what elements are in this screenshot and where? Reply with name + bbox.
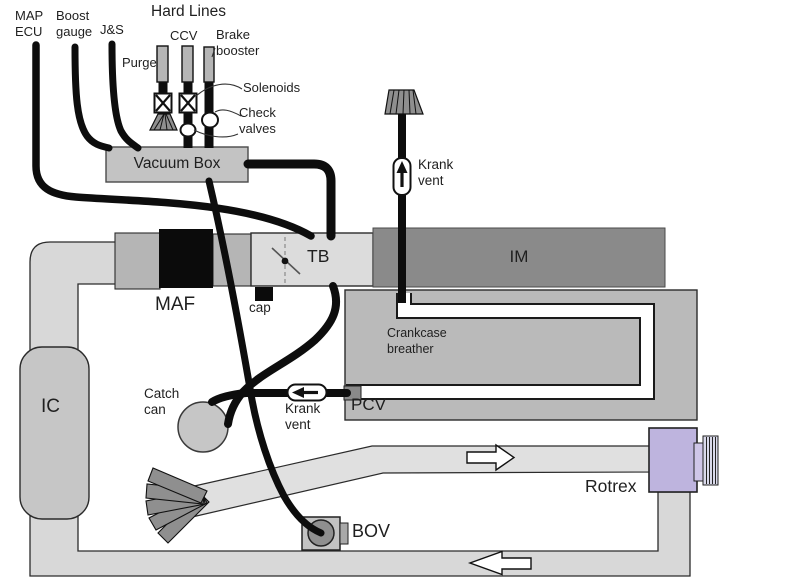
ccv-solenoid-icon [180,94,197,113]
label-rotrex: Rotrex [585,476,637,497]
intercooler-shape [20,347,89,519]
boost-gauge-hose [75,47,109,148]
label-bov: BOV [352,521,390,543]
label-purge: Purge [122,55,157,71]
ccv-stub [182,46,193,82]
label-solenoids: Solenoids [243,80,300,96]
purge-solenoid-icon [155,94,172,113]
throttle-pivot-dot [282,258,289,265]
supercharger-inlet-pipe [181,446,650,517]
label-krank-vent-mid: Krank vent [285,401,320,433]
label-check-valves: Check valves [239,105,276,136]
krank-vent-filter-icon [385,90,423,114]
maf-sensor-shape [159,229,213,288]
brake-check-valve-icon [202,113,218,128]
ccv-check-valve-icon [181,124,196,137]
brake-stub [204,47,214,82]
label-js: J&S [100,22,124,38]
label-catch-can: Catch can [144,386,179,418]
pulley-shaft [694,443,703,481]
label-maf: MAF [155,294,195,317]
label-im: IM [373,228,665,287]
krank-vent-valve-mid-icon [288,385,327,401]
intake-elbow-pipe [30,242,118,352]
label-map-ecu: MAP ECU [15,8,43,39]
purge-filter-icon [150,114,177,130]
label-ic: IC [41,396,60,419]
catch-can-shape [178,402,228,452]
label-hard-lines: Hard Lines [151,3,226,22]
purge-stub [157,46,168,82]
label-crankcase-breather: Crankcase breather [387,325,447,358]
cap-shape [255,287,273,301]
check-valves-leader-ccv [194,130,238,137]
check-valves-leader-brake [215,110,241,116]
vacuum-diagram: MAP ECU Boost gauge J&S Hard Lines Purge… [0,0,800,588]
label-vacuum-box: Vacuum Box [106,147,248,182]
label-cap: cap [249,300,271,316]
label-brake-booster: Brake booster [216,27,259,58]
pipe-section-left [115,233,160,289]
label-tb: TB [307,246,329,267]
rotrex-supercharger-shape [649,428,718,492]
krank-vent-valve-top-icon [394,158,411,195]
diagram-canvas [0,0,800,588]
label-ccv: CCV [170,28,197,44]
solenoids-leader [196,84,242,96]
label-boost-gauge: Boost gauge [56,8,92,39]
intake-filter-fan-icon [146,468,209,543]
label-pcv: PCV [351,395,386,415]
hard-line-stubs [157,46,214,82]
label-krank-vent-top: Krank vent [418,157,453,189]
